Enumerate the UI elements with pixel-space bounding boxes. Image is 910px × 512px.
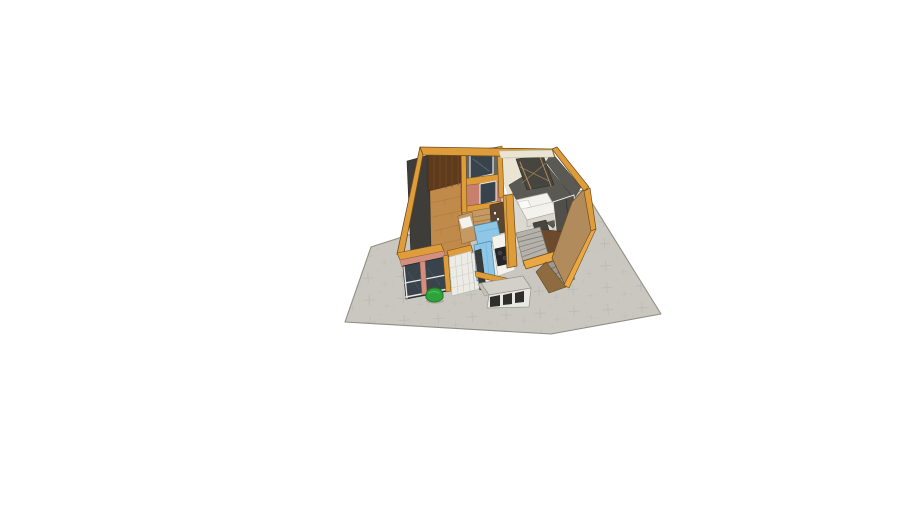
garden-bush [426,288,444,304]
house-model [397,146,596,308]
planter-inset [515,291,524,303]
stove-burner [498,251,502,255]
salmon-wall-window [480,181,496,205]
bush [426,288,443,302]
frame-post-left [461,150,467,217]
planter-inset [490,295,500,307]
house-3d-scene [0,0,910,512]
cream-wall-top-strip [499,150,554,158]
planter-inset [503,293,512,305]
model-viewport[interactable] [0,0,910,512]
tiled-half-wall [449,251,475,296]
